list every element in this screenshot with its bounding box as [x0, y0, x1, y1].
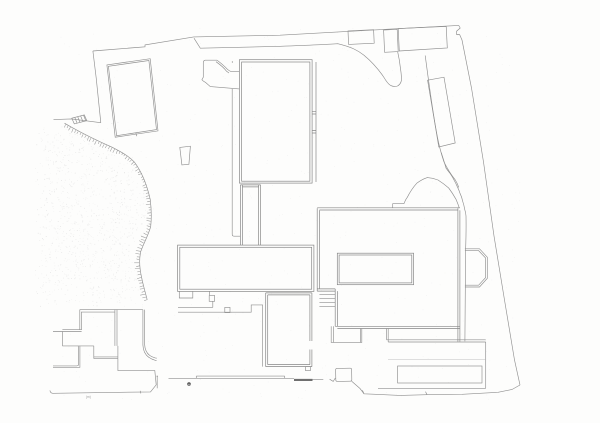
- svg-text:(m): (m): [86, 395, 91, 399]
